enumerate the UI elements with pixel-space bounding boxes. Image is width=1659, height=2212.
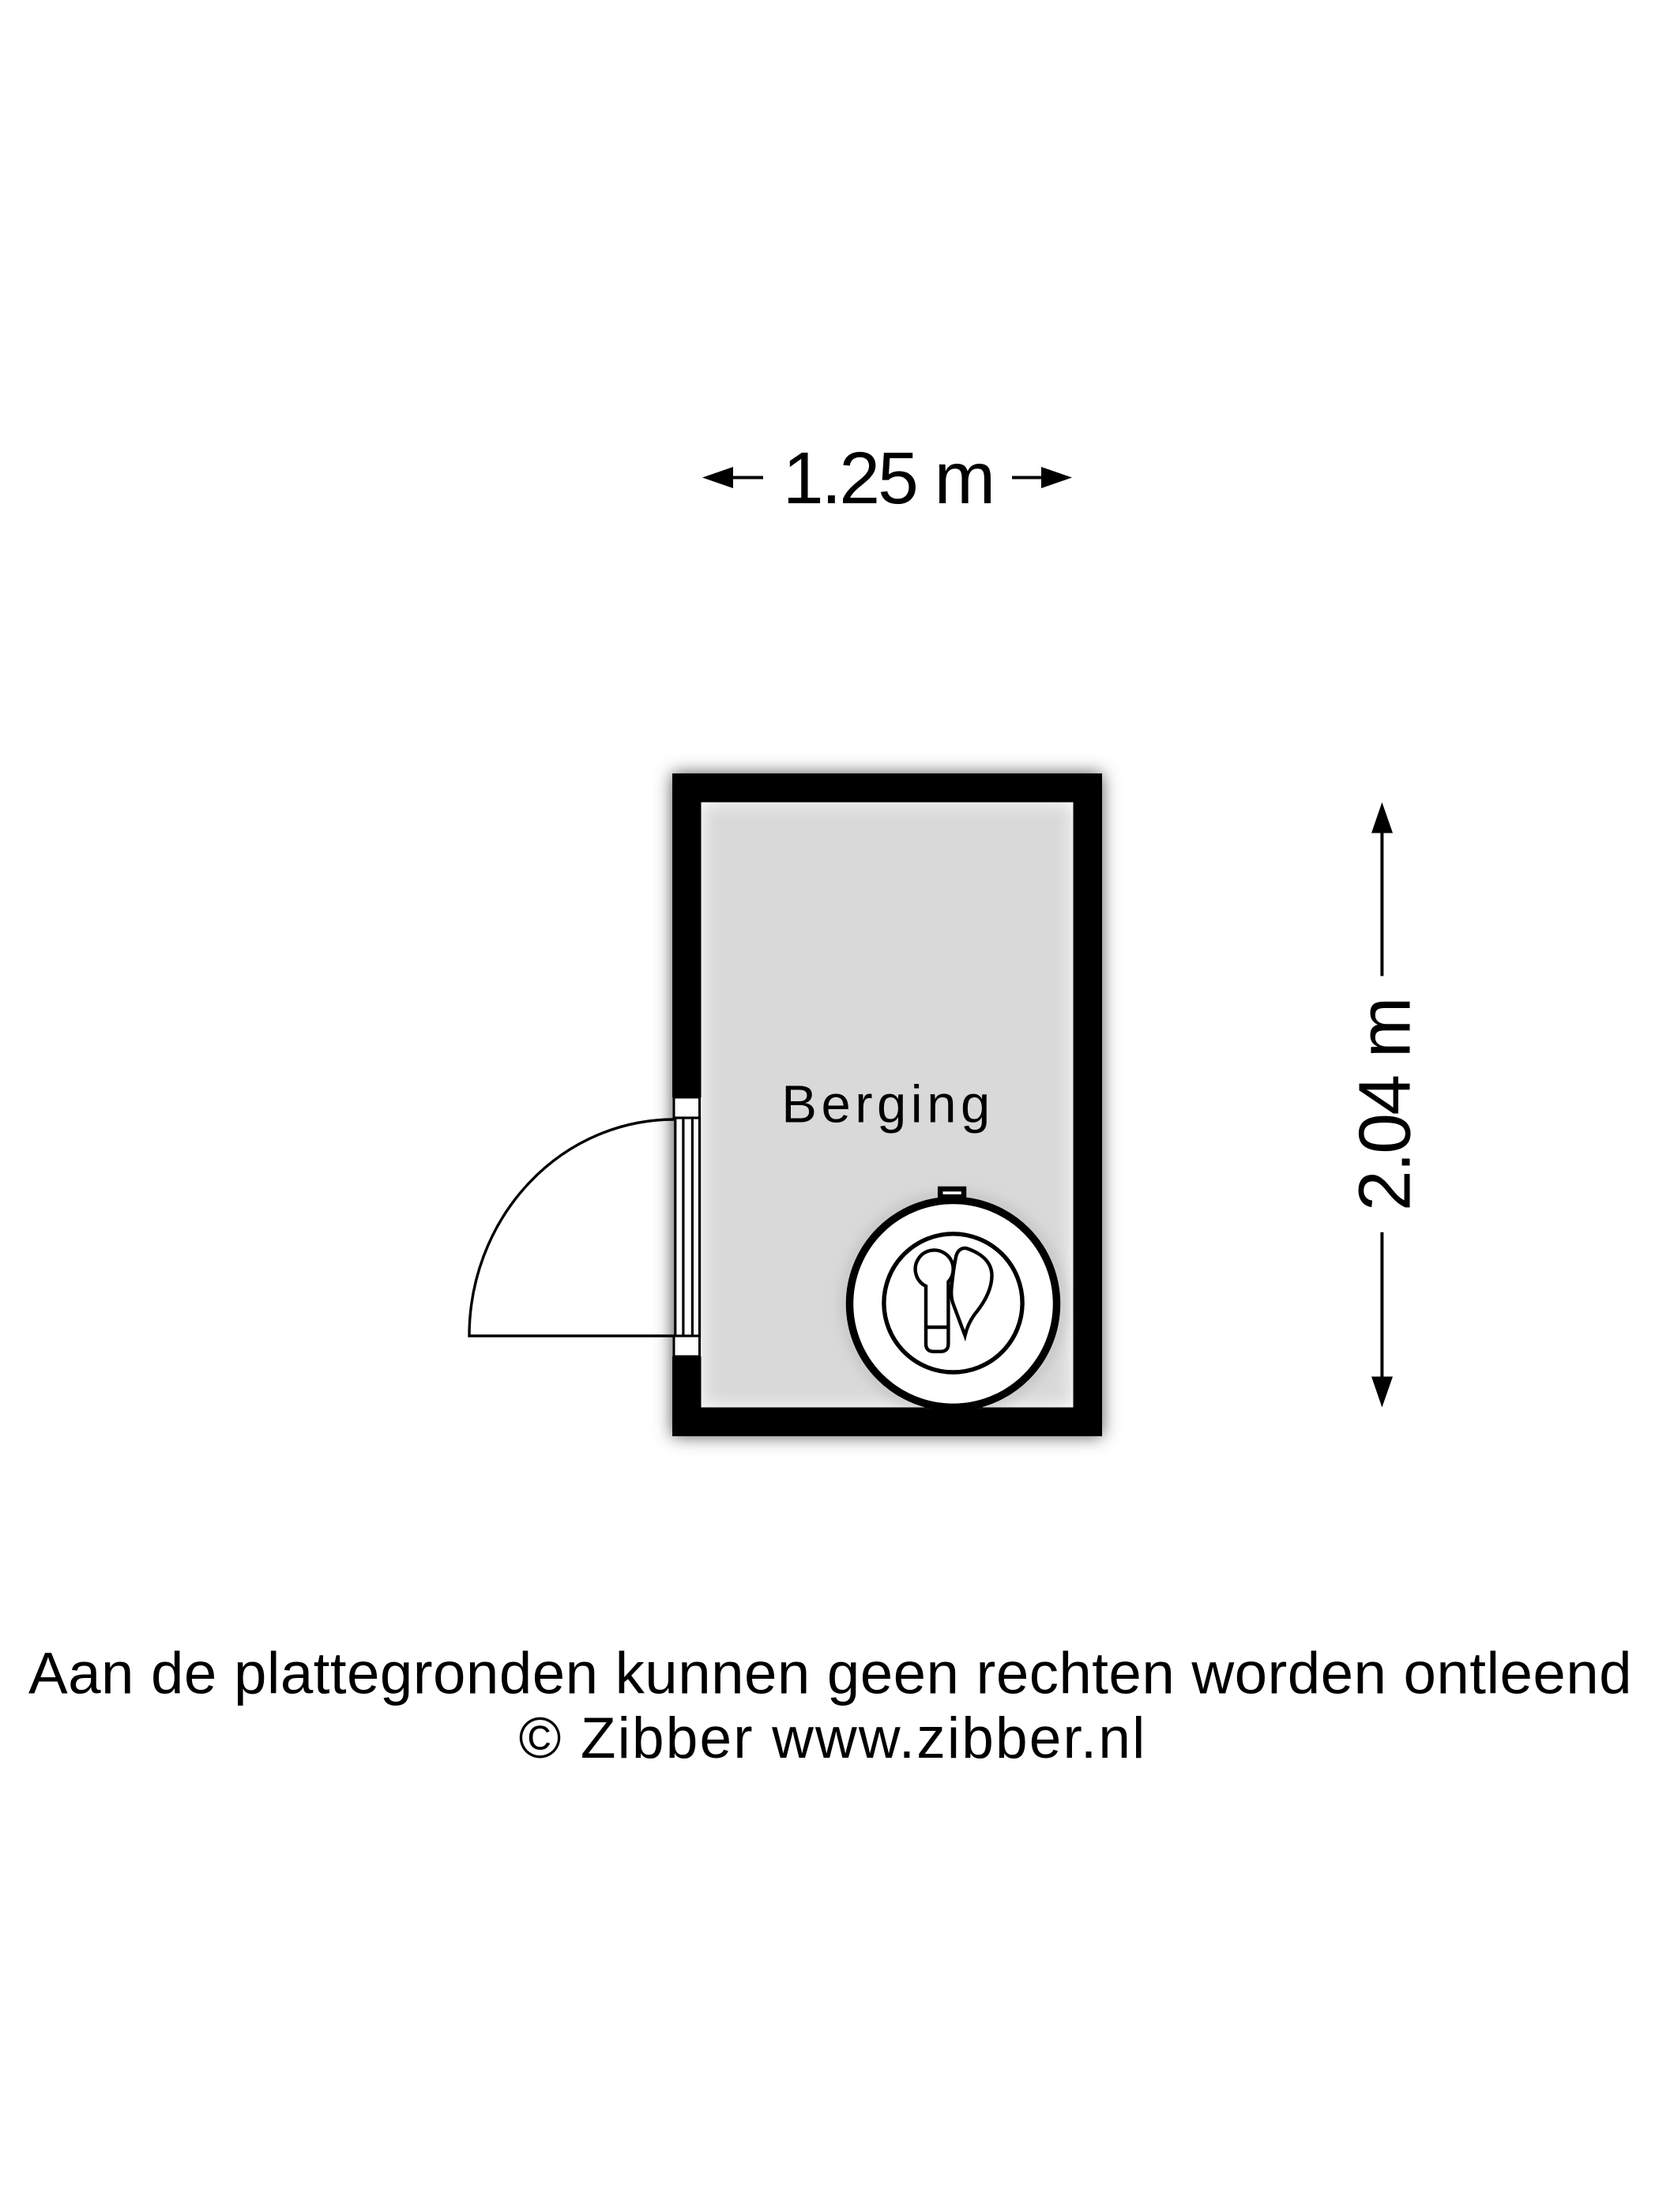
svg-text:Berging: Berging (781, 1075, 994, 1134)
svg-text:2.04 m: 2.04 m (1343, 999, 1425, 1211)
svg-text:1.25 m: 1.25 m (783, 437, 993, 519)
svg-text:Aan de plattegronden kunnen ge: Aan de plattegronden kunnen geen rechten… (28, 1640, 1632, 1706)
svg-text:© Zibber www.zibber.nl: © Zibber www.zibber.nl (519, 1706, 1147, 1770)
